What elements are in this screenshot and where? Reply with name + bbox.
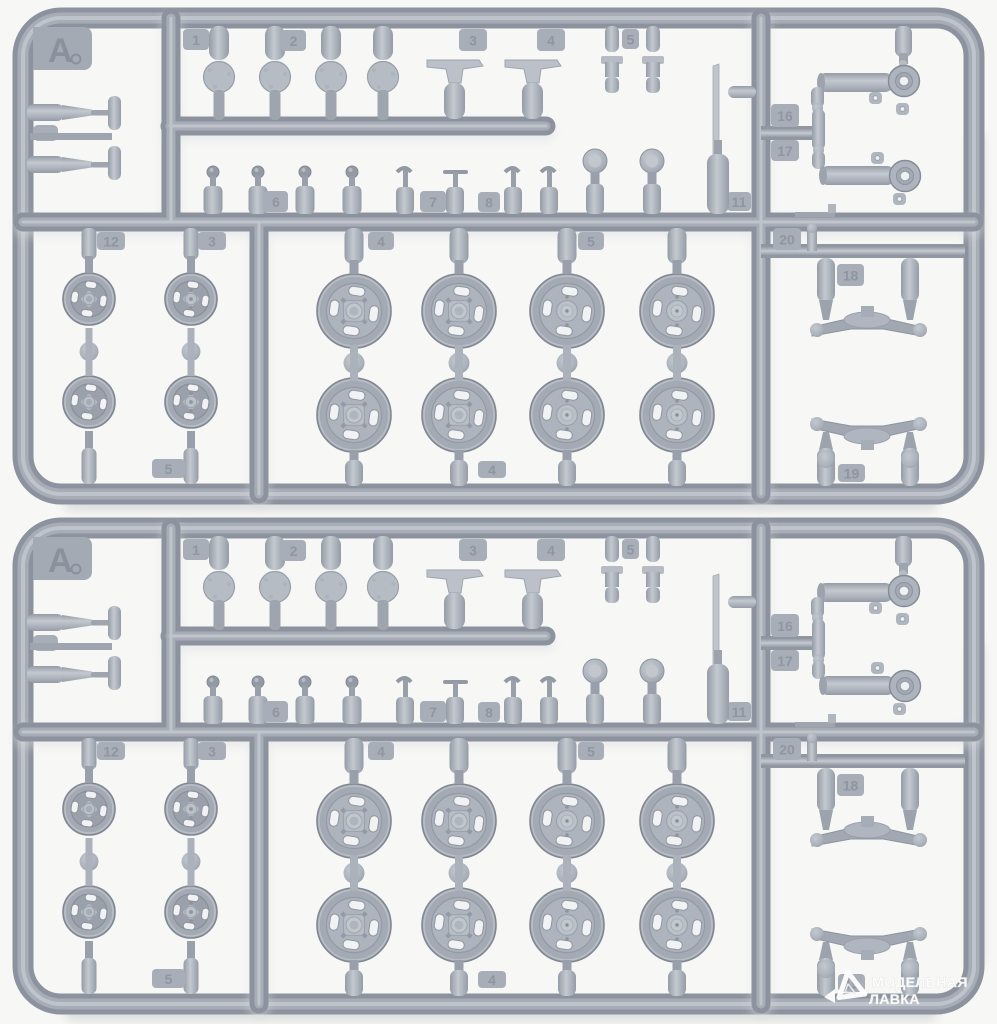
svg-text:3: 3 — [208, 234, 216, 250]
svg-text:5: 5 — [165, 461, 173, 477]
svg-text:16: 16 — [777, 108, 793, 124]
svg-text:11: 11 — [732, 194, 747, 210]
svg-text:20: 20 — [779, 232, 795, 248]
svg-text:ЛАВКА: ЛАВКА — [869, 992, 920, 1008]
svg-text:4: 4 — [377, 234, 385, 250]
svg-text:12: 12 — [103, 234, 119, 250]
svg-text:17: 17 — [777, 143, 793, 159]
svg-text:5: 5 — [587, 234, 595, 250]
svg-text:8: 8 — [485, 195, 493, 211]
svg-text:5: 5 — [627, 32, 635, 48]
svg-text:4: 4 — [547, 33, 555, 49]
svg-text:7: 7 — [429, 194, 437, 210]
svg-text:МОДЕЛЬНАЯ: МОДЕЛЬНАЯ — [872, 975, 968, 991]
svg-text:19: 19 — [844, 466, 860, 482]
svg-text:18: 18 — [843, 268, 859, 284]
svg-text:1: 1 — [192, 32, 200, 48]
svg-text:4: 4 — [488, 462, 496, 478]
svg-text:6: 6 — [272, 194, 280, 210]
svg-text:3: 3 — [469, 33, 477, 49]
svg-text:A: A — [48, 32, 73, 70]
svg-text:2: 2 — [290, 33, 298, 49]
